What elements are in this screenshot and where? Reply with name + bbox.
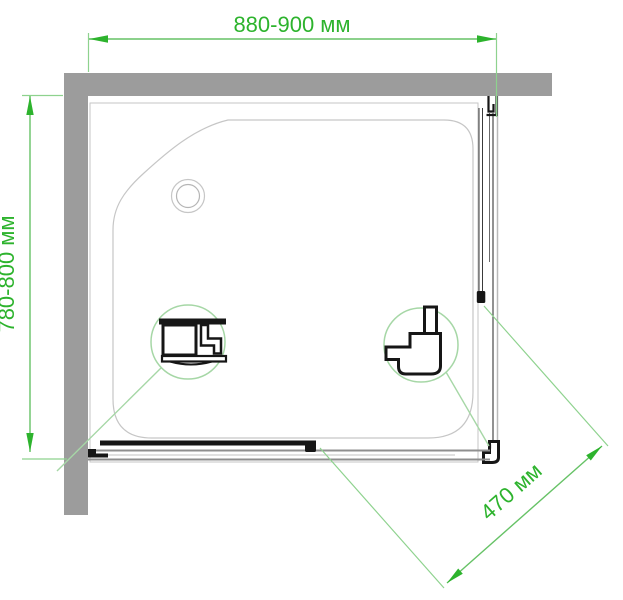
right-door-handle	[477, 291, 486, 303]
drawing-canvas: 880-900 мм 780-800 мм 470 мм	[0, 0, 623, 600]
left-dim-arrow-bottom	[26, 433, 33, 452]
door-width-dimension-label: 470 мм	[475, 458, 546, 525]
right-callout-leader	[446, 372, 489, 446]
drain-icon	[172, 180, 205, 213]
top-dim-arrow-right	[477, 35, 496, 42]
left-wall	[64, 73, 88, 515]
dimension-diagonal-door: 470 мм	[320, 306, 608, 588]
bottom-sliding-door	[100, 441, 316, 446]
bottom-door-handle	[305, 444, 316, 452]
left-dim-arrow-top	[26, 96, 33, 115]
depth-dimension-label: 780-800 мм	[0, 215, 19, 332]
shower-tray	[90, 103, 478, 462]
diag-dim-extension-right	[484, 306, 608, 446]
top-width-dimension-label: 880-900 мм	[233, 12, 350, 37]
shower-enclosure-diagram: 880-900 мм 780-800 мм 470 мм	[0, 0, 623, 600]
dimension-top-width: 880-900 мм	[89, 12, 497, 117]
right-side-panels	[477, 96, 499, 463]
diag-dim-extension-left	[320, 448, 444, 588]
tray-basin-outline	[113, 120, 473, 438]
callouts	[57, 305, 489, 471]
top-wall	[64, 73, 552, 96]
tray-outer-outline	[90, 103, 478, 462]
top-dim-arrow-left	[89, 35, 108, 42]
bottom-door-assembly	[88, 441, 490, 460]
dimension-left-depth: 780-800 мм	[0, 96, 67, 460]
top-right-wall-profile	[487, 96, 497, 115]
